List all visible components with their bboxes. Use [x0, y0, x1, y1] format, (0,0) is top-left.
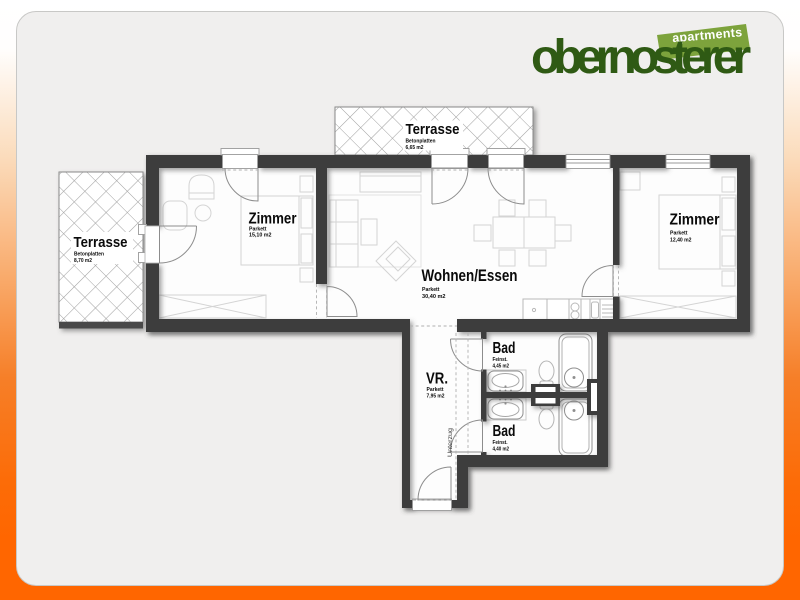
svg-text:Parkett: Parkett: [422, 287, 440, 293]
svg-text:Feinst.: Feinst.: [493, 357, 508, 363]
svg-text:Zimmer: Zimmer: [249, 211, 297, 228]
svg-text:obernosterer: obernosterer: [531, 31, 751, 84]
svg-text:VR.: VR.: [426, 371, 448, 388]
svg-text:Zimmer: Zimmer: [670, 212, 720, 229]
svg-text:Terrasse: Terrasse: [406, 121, 460, 138]
svg-text:12,40 m2: 12,40 m2: [670, 238, 692, 244]
svg-text:Terrasse: Terrasse: [74, 234, 128, 251]
svg-text:7,95 m2: 7,95 m2: [427, 394, 445, 400]
svg-text:Bad: Bad: [493, 423, 516, 440]
svg-text:Betonplatten: Betonplatten: [74, 252, 104, 258]
svg-text:Parkett: Parkett: [670, 231, 688, 237]
svg-text:Bad: Bad: [493, 340, 516, 357]
svg-text:30,40 m2: 30,40 m2: [422, 294, 446, 300]
svg-text:8,70 m2: 8,70 m2: [74, 258, 92, 264]
svg-text:4,40 m2: 4,40 m2: [493, 447, 510, 453]
svg-text:Unterzug: Unterzug: [448, 428, 454, 457]
svg-text:Betonplatten: Betonplatten: [406, 139, 436, 145]
svg-text:6,65 m2: 6,65 m2: [406, 145, 424, 151]
svg-text:Wohnen/Essen: Wohnen/Essen: [422, 267, 518, 285]
svg-text:15,10 m2: 15,10 m2: [249, 233, 272, 239]
svg-text:Feinst.: Feinst.: [493, 440, 508, 446]
svg-text:Parkett: Parkett: [427, 387, 444, 393]
svg-text:4,45 m2: 4,45 m2: [493, 364, 510, 370]
